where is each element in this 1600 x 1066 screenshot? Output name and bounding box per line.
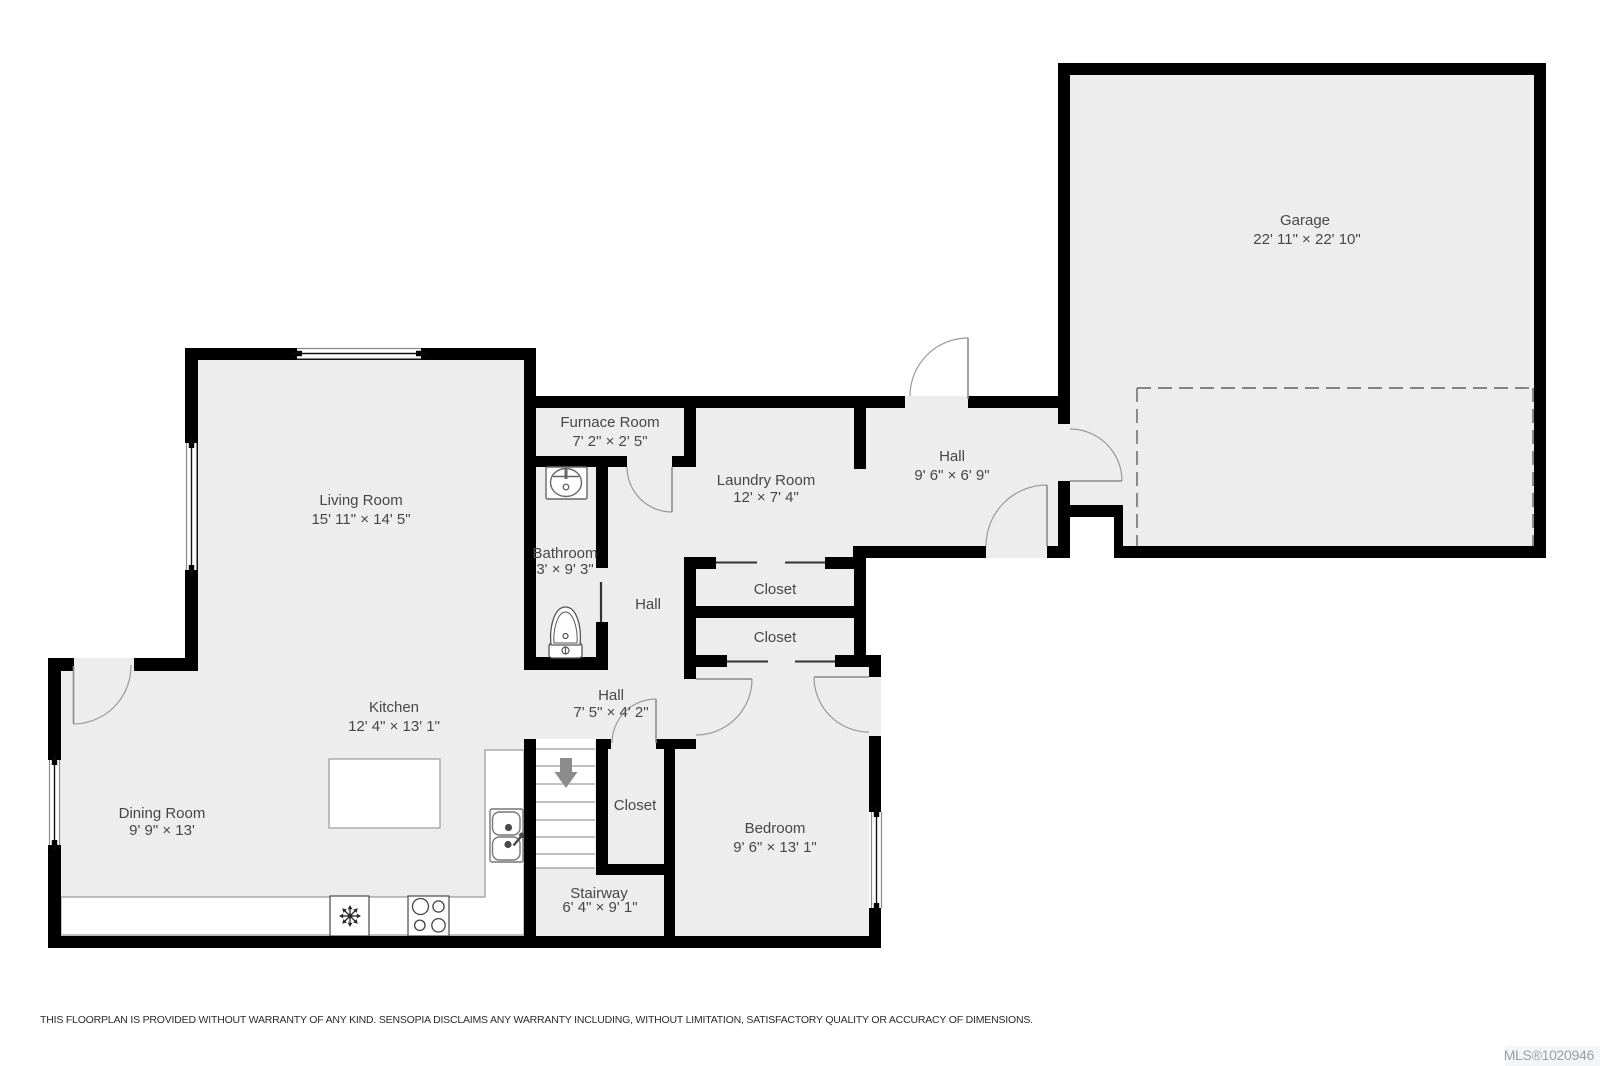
svg-text:Closet: Closet	[754, 629, 797, 646]
svg-text:Dining Room: Dining Room	[119, 805, 206, 822]
svg-text:Laundry Room: Laundry Room	[717, 472, 815, 489]
svg-text:15' 11" × 14' 5": 15' 11" × 14' 5"	[311, 511, 410, 528]
svg-text:Hall: Hall	[635, 596, 661, 613]
svg-text:3' × 9' 3": 3' × 9' 3"	[536, 561, 593, 578]
svg-text:9' 6" × 6' 9": 9' 6" × 6' 9"	[914, 467, 989, 484]
svg-text:9' 9" × 13': 9' 9" × 13'	[129, 822, 195, 839]
svg-text:Living Room: Living Room	[319, 492, 402, 509]
svg-text:Hall: Hall	[598, 687, 624, 704]
svg-text:Bathroom: Bathroom	[532, 545, 597, 562]
svg-text:Closet: Closet	[754, 581, 797, 598]
svg-text:Closet: Closet	[614, 797, 657, 814]
svg-text:12' 4" × 13' 1": 12' 4" × 13' 1"	[348, 718, 440, 735]
svg-text:9' 6" × 13' 1": 9' 6" × 13' 1"	[733, 839, 817, 856]
svg-text:Bedroom: Bedroom	[745, 820, 806, 837]
svg-text:12' × 7' 4": 12' × 7' 4"	[733, 489, 799, 506]
svg-text:MLS®1020946: MLS®1020946	[1504, 1047, 1595, 1063]
svg-text:Kitchen: Kitchen	[369, 699, 419, 716]
svg-text:THIS FLOORPLAN IS PROVIDED WIT: THIS FLOORPLAN IS PROVIDED WITHOUT WARRA…	[40, 1014, 1033, 1026]
svg-text:7' 2" × 2' 5": 7' 2" × 2' 5"	[572, 433, 647, 450]
svg-text:Hall: Hall	[939, 448, 965, 465]
svg-text:7' 5" × 4' 2": 7' 5" × 4' 2"	[573, 704, 648, 721]
svg-text:Garage: Garage	[1280, 212, 1330, 229]
svg-text:22' 11" × 22' 10": 22' 11" × 22' 10"	[1253, 231, 1360, 248]
svg-text:6' 4" × 9' 1": 6' 4" × 9' 1"	[562, 899, 637, 916]
svg-text:Furnace Room: Furnace Room	[560, 414, 659, 431]
